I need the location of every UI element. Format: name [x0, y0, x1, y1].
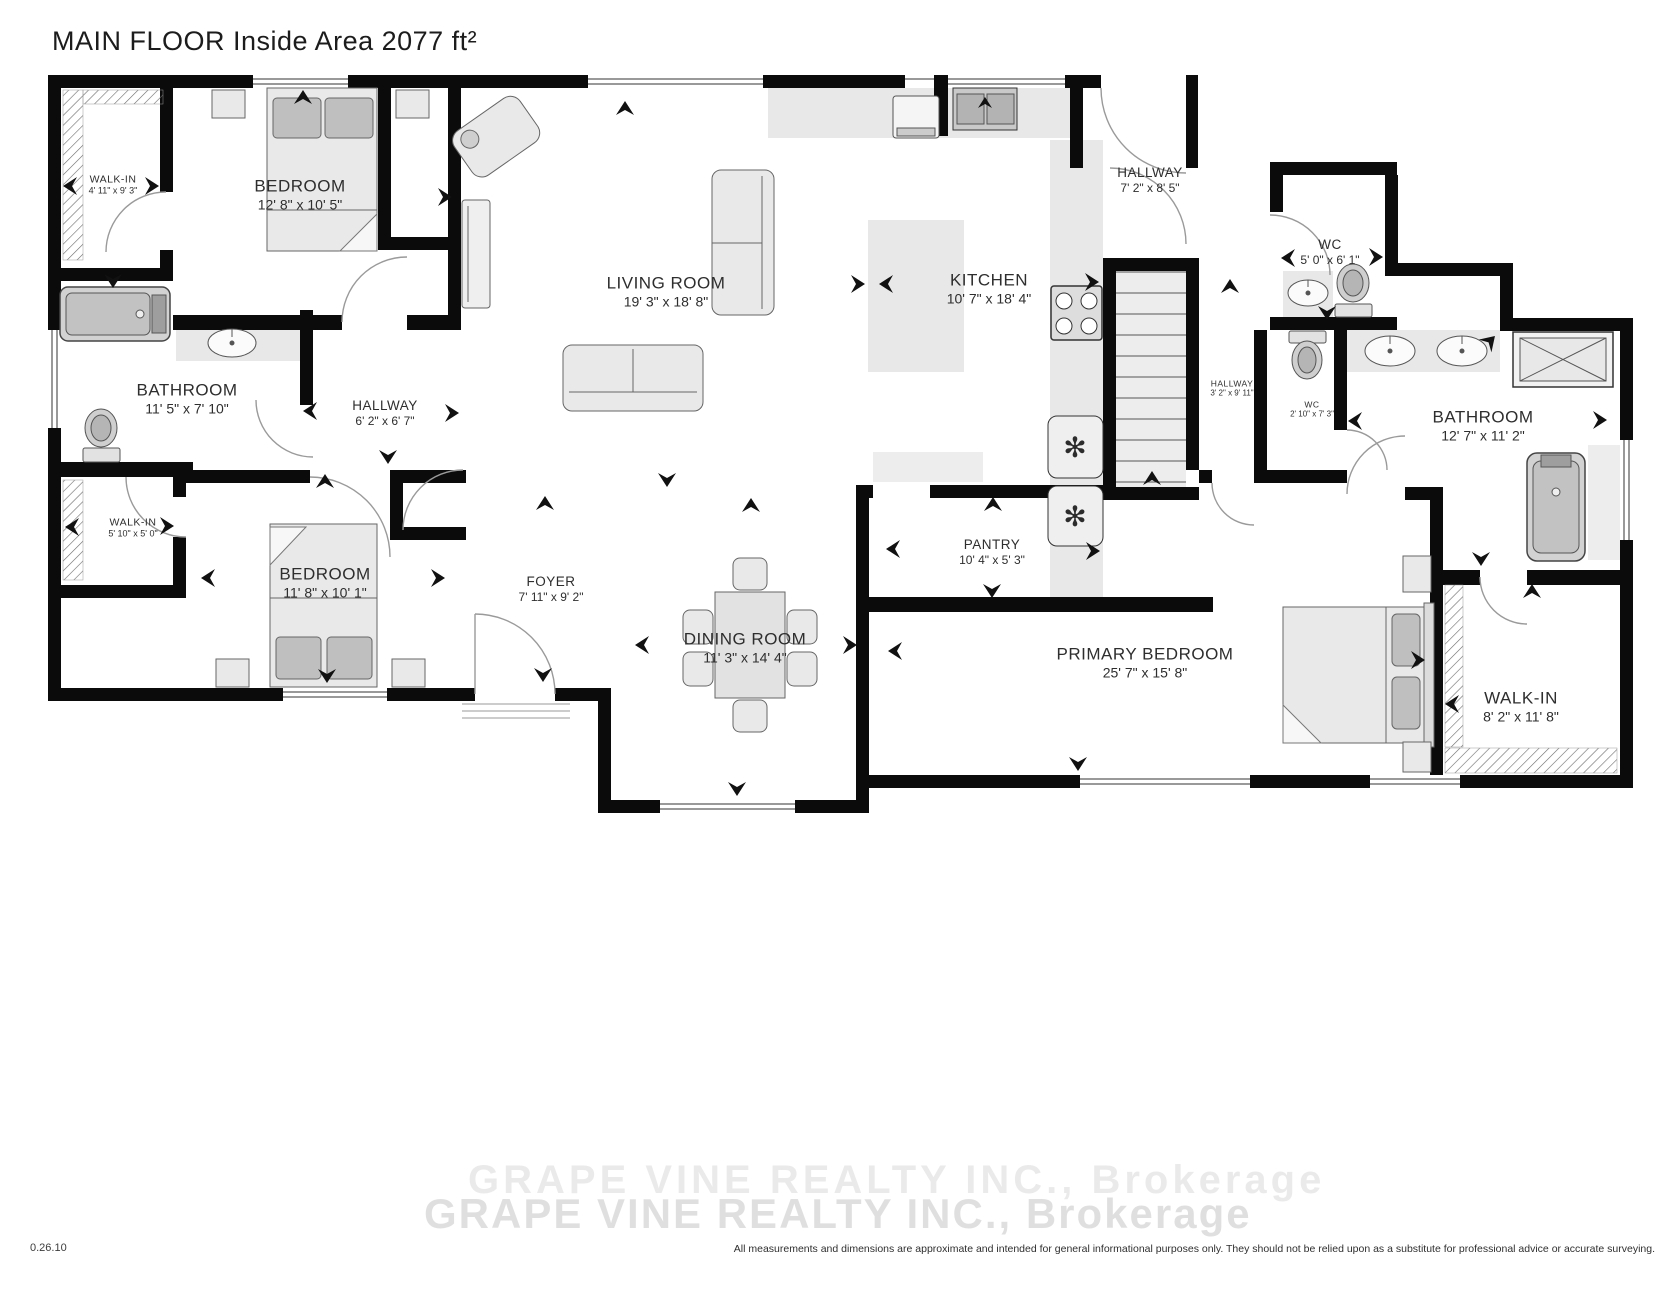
- room-label-foyer: FOYER 7' 11" x 9' 2": [519, 574, 584, 604]
- room-dims: 19' 3" x 18' 8": [607, 294, 726, 311]
- room-name: DINING ROOM: [684, 630, 807, 650]
- watermark-line-2: GRAPE VINE REALTY INC., Brokerage: [424, 1190, 1252, 1238]
- room-name: HALLWAY: [1210, 378, 1253, 388]
- room-label-wc-2: WC 2' 10" x 7' 3": [1290, 399, 1334, 418]
- room-name: WALK-IN: [108, 517, 157, 529]
- room-label-wc-1: WC 5' 0" x 6' 1": [1300, 237, 1359, 267]
- room-name: BEDROOM: [254, 177, 345, 197]
- room-label-dining-room: DINING ROOM 11' 3" x 14' 4": [684, 630, 807, 667]
- room-name: KITCHEN: [947, 271, 1032, 291]
- room-label-bathroom-2: BATHROOM 12' 7" x 11' 2": [1433, 408, 1534, 445]
- room-name: HALLWAY: [1117, 165, 1183, 181]
- room-label-bathroom-1: BATHROOM 11' 5" x 7' 10": [137, 381, 238, 418]
- room-name: WALK-IN: [1483, 689, 1559, 709]
- room-dims: 12' 8" x 10' 5": [254, 197, 345, 214]
- room-dims: 11' 3" x 14' 4": [684, 650, 807, 667]
- room-dims: 2' 10" x 7' 3": [1290, 409, 1334, 418]
- room-dims: 7' 11" x 9' 2": [519, 590, 584, 604]
- room-dims: 8' 2" x 11' 8": [1483, 709, 1559, 726]
- room-label-bedroom-1: BEDROOM 12' 8" x 10' 5": [254, 177, 345, 214]
- room-label-living-room: LIVING ROOM 19' 3" x 18' 8": [607, 274, 726, 311]
- room-name: BATHROOM: [137, 381, 238, 401]
- room-label-walk-in-3: WALK-IN 8' 2" x 11' 8": [1483, 689, 1559, 726]
- room-name: WC: [1290, 399, 1334, 409]
- svg-text:✻: ✻: [1063, 431, 1086, 464]
- room-name: FOYER: [519, 574, 584, 590]
- room-name: BATHROOM: [1433, 408, 1534, 428]
- room-name: LIVING ROOM: [607, 274, 726, 294]
- room-label-hallway-top: HALLWAY 7' 2" x 8' 5": [1117, 165, 1183, 195]
- room-name: WC: [1300, 237, 1359, 253]
- bedroom2-furniture: [216, 524, 425, 687]
- room-dims: 25' 7" x 15' 8": [1057, 665, 1234, 682]
- room-label-hallway-mid: HALLWAY 3' 2" x 9' 11": [1210, 378, 1253, 397]
- room-label-primary-bedroom: PRIMARY BEDROOM 25' 7" x 15' 8": [1057, 645, 1234, 682]
- room-name: PANTRY: [959, 537, 1025, 553]
- room-label-kitchen: KITCHEN 10' 7" x 18' 4": [947, 271, 1032, 308]
- room-dims: 12' 7" x 11' 2": [1433, 428, 1534, 445]
- room-label-walk-in-1: WALK-IN 4' 11" x 9' 3": [89, 174, 138, 197]
- room-name: WALK-IN: [89, 174, 138, 186]
- room-label-pantry: PANTRY 10' 4" x 5' 3": [959, 537, 1025, 567]
- bathroom-fixtures: [60, 264, 1613, 561]
- room-dims: 5' 0" x 6' 1": [1300, 253, 1359, 267]
- bedroom1-furniture: [212, 88, 429, 251]
- room-dims: 11' 8" x 10' 1": [279, 585, 370, 602]
- room-dims: 5' 10" x 5' 0": [108, 529, 157, 540]
- floor-plan-page: MAIN FLOOR Inside Area 2077 ft²: [0, 0, 1680, 1299]
- room-dims: 7' 2" x 8' 5": [1117, 181, 1183, 195]
- room-dims: 4' 11" x 9' 3": [89, 186, 138, 197]
- primary-bedroom-furniture: [1283, 556, 1434, 772]
- room-dims: 10' 4" x 5' 3": [959, 553, 1025, 567]
- armchair: [448, 92, 545, 182]
- room-name: BEDROOM: [279, 565, 370, 585]
- floor-plan-canvas: ✻ ✻: [0, 0, 1680, 1299]
- room-label-walk-in-2: WALK-IN 5' 10" x 5' 0": [108, 517, 157, 540]
- room-dims: 10' 7" x 18' 4": [947, 291, 1032, 308]
- living-room-furniture: [448, 92, 774, 411]
- svg-text:✻: ✻: [1063, 500, 1086, 533]
- room-label-bedroom-2: BEDROOM 11' 8" x 10' 1": [279, 565, 370, 602]
- room-name: HALLWAY: [352, 398, 418, 414]
- room-dims: 3' 2" x 9' 11": [1210, 388, 1253, 397]
- porch-steps: [462, 704, 570, 718]
- tv-unit: [462, 200, 490, 308]
- room-dims: 6' 2" x 6' 7": [352, 414, 418, 428]
- room-label-hallway-center: HALLWAY 6' 2" x 6' 7": [352, 398, 418, 428]
- room-dims: 11' 5" x 7' 10": [137, 401, 238, 418]
- room-name: PRIMARY BEDROOM: [1057, 645, 1234, 665]
